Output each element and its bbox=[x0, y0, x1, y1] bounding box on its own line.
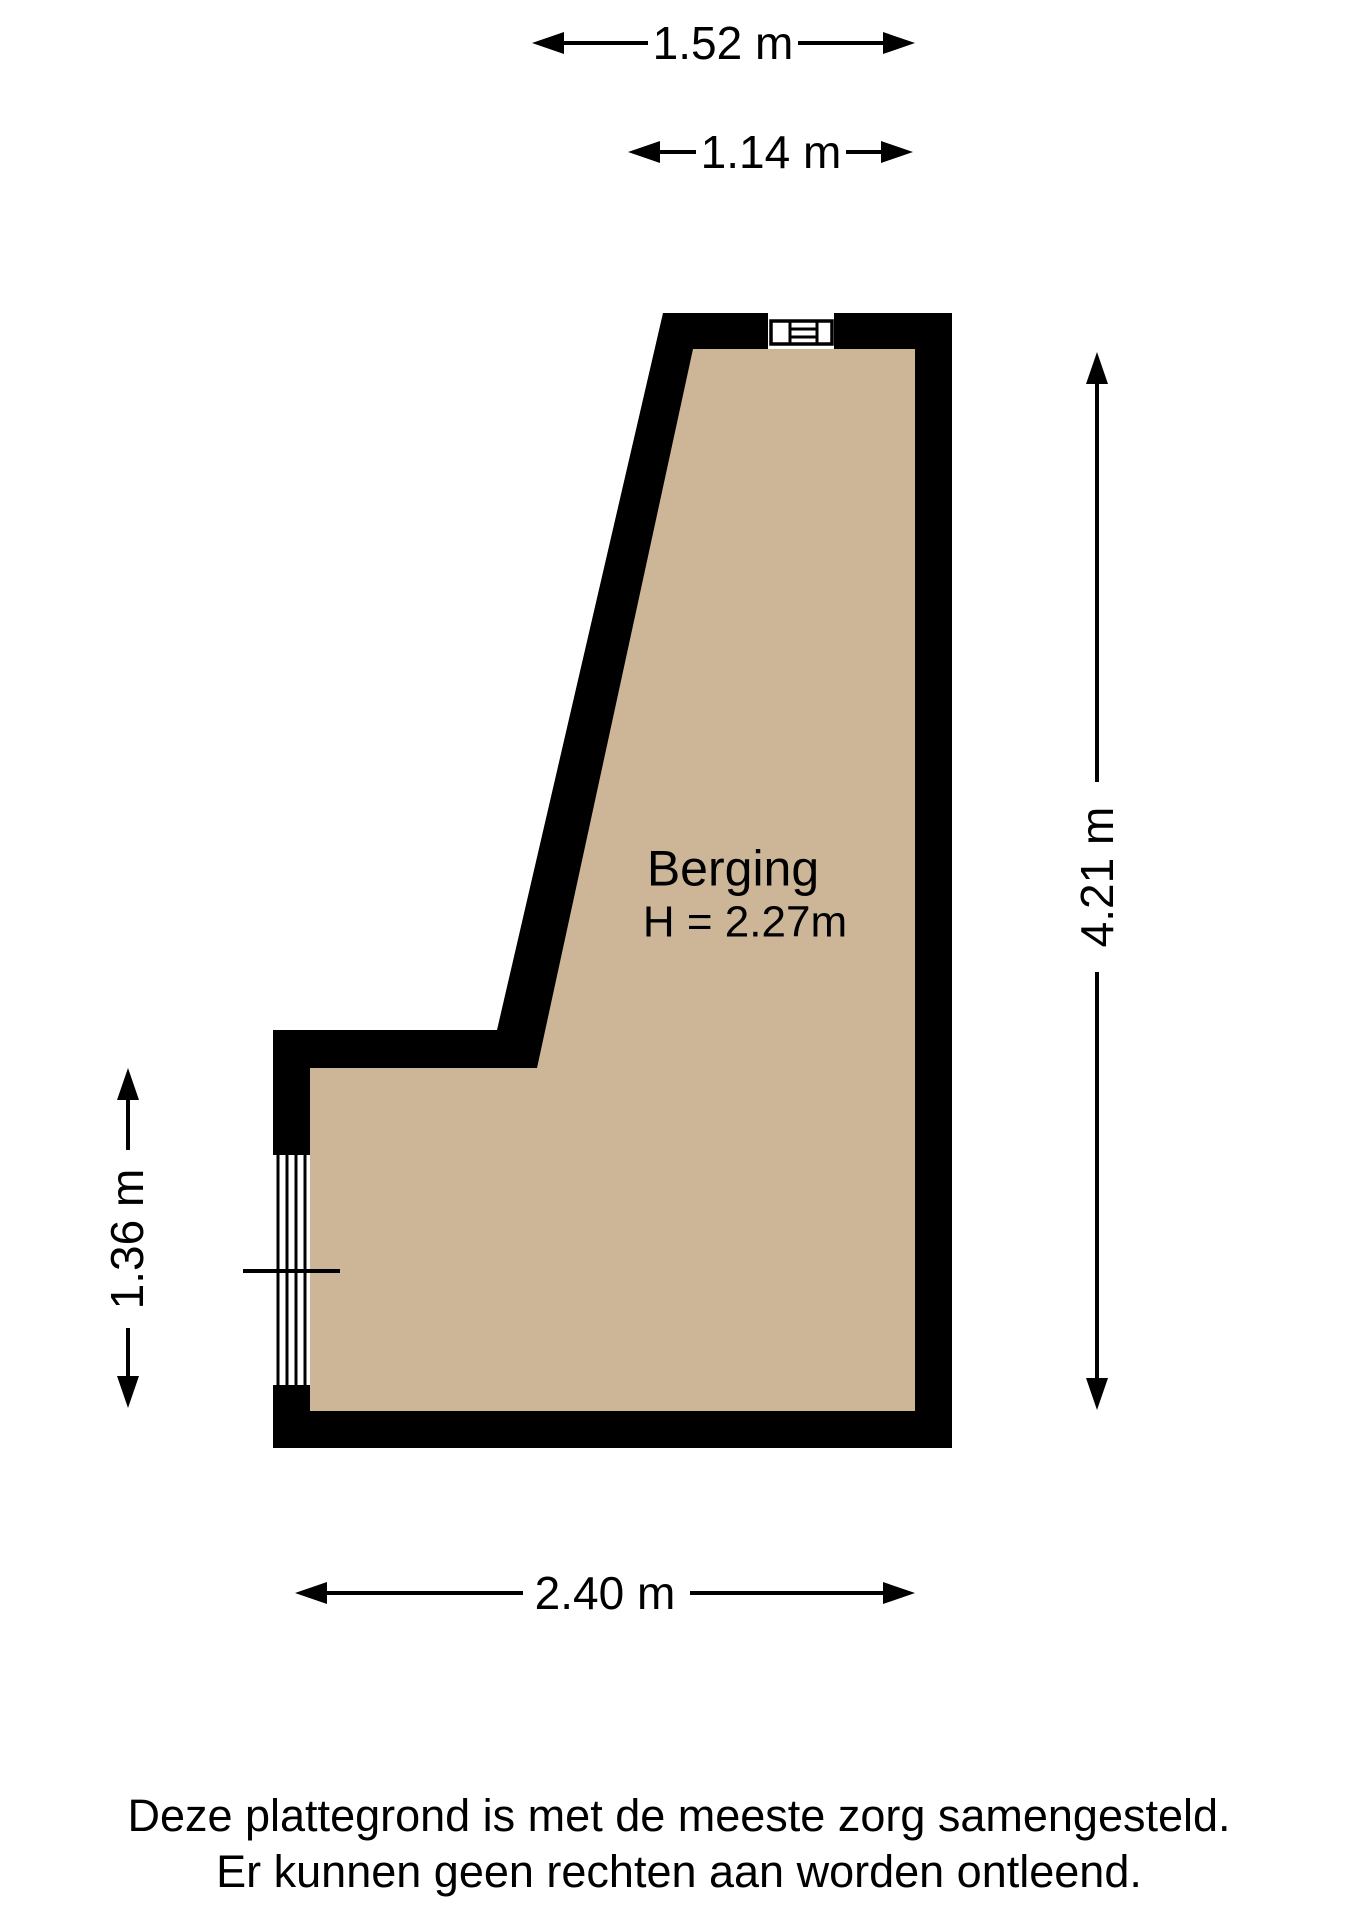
disclaimer: Deze plattegrond is met de meeste zorg s… bbox=[127, 1790, 1230, 1897]
arrowhead-left-icon bbox=[295, 1582, 327, 1604]
room-label: Berging H = 2.27m bbox=[643, 841, 847, 947]
dimension-left: 1.36 m bbox=[101, 1068, 153, 1408]
arrowhead-right-icon bbox=[883, 1582, 915, 1604]
room-name-label: Berging bbox=[647, 841, 819, 897]
arrowhead-left-icon bbox=[628, 141, 660, 163]
arrowhead-down-icon bbox=[1086, 1378, 1108, 1410]
dimension-top-outer: 1.52 m bbox=[532, 17, 915, 69]
dim-label-bottom: 2.40 m bbox=[535, 1567, 676, 1619]
floorplan-page: 1.52 m 1.14 m 4.21 m 1.36 m bbox=[0, 0, 1358, 1920]
dim-label-top-outer: 1.52 m bbox=[653, 17, 794, 69]
arrowhead-up-icon bbox=[1086, 352, 1108, 384]
dim-label-left: 1.36 m bbox=[101, 1169, 153, 1310]
arrowhead-right-icon bbox=[883, 32, 915, 54]
dimension-right: 4.21 m bbox=[1071, 352, 1123, 1410]
arrowhead-down-icon bbox=[117, 1376, 139, 1408]
dimension-top-inner: 1.14 m bbox=[628, 126, 913, 178]
dim-label-right: 4.21 m bbox=[1071, 807, 1123, 948]
room-floor bbox=[310, 349, 915, 1411]
disclaimer-line-1: Deze plattegrond is met de meeste zorg s… bbox=[127, 1790, 1230, 1841]
arrowhead-up-icon bbox=[117, 1068, 139, 1100]
floorplan-canvas: 1.52 m 1.14 m 4.21 m 1.36 m bbox=[0, 0, 1358, 1920]
top-window-icon bbox=[768, 313, 834, 349]
dimension-bottom: 2.40 m bbox=[295, 1567, 915, 1619]
room-height-label: H = 2.27m bbox=[643, 897, 847, 946]
dim-label-top-inner: 1.14 m bbox=[701, 126, 842, 178]
disclaimer-line-2: Er kunnen geen rechten aan worden ontlee… bbox=[216, 1846, 1142, 1897]
arrowhead-right-icon bbox=[881, 141, 913, 163]
arrowhead-left-icon bbox=[532, 32, 564, 54]
